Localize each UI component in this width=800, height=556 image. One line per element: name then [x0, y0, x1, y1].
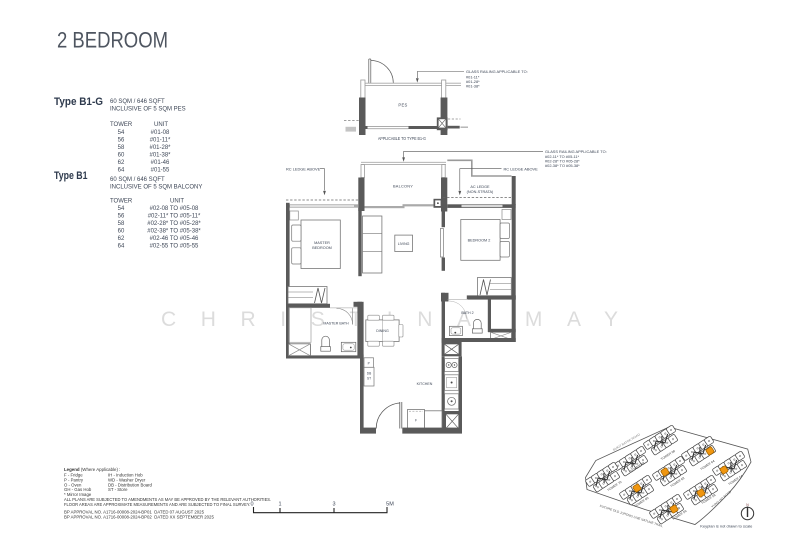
svg-text:Type B1: Type B1	[54, 170, 88, 182]
svg-text:56: 56	[118, 138, 125, 144]
svg-text:UNIT: UNIT	[170, 199, 184, 205]
svg-text:64: 64	[118, 244, 125, 250]
svg-text:#01-11*: #01-11*	[150, 138, 171, 144]
svg-text:5M: 5M	[386, 502, 394, 508]
svg-text:54: 54	[118, 206, 125, 212]
svg-text:#01-38*: #01-38*	[149, 153, 171, 159]
svg-text:MASTER: MASTER	[314, 241, 330, 245]
svg-text:Legend (Where Applicable) :: Legend (Where Applicable) :	[64, 467, 120, 472]
svg-text:BEDROOM: BEDROOM	[312, 246, 332, 250]
svg-text:64: 64	[118, 168, 125, 174]
svg-text:LIVING: LIVING	[398, 242, 410, 246]
svg-text:Keyplan is not drawn to scale: Keyplan is not drawn to scale	[700, 524, 753, 529]
svg-text:(NON-STRATA): (NON-STRATA)	[467, 190, 494, 194]
svg-text:P: P	[368, 361, 370, 365]
svg-text:58: 58	[118, 221, 125, 227]
svg-text:#01-46: #01-46	[151, 160, 170, 166]
svg-text:RC LEDGE ABOVE: RC LEDGE ABOVE	[504, 166, 539, 171]
svg-text:#01-28*: #01-28*	[149, 145, 171, 151]
svg-text:BATH 2: BATH 2	[461, 311, 473, 315]
svg-text:#02-08 TO #05-08: #02-08 TO #05-08	[150, 206, 199, 212]
svg-text:60: 60	[118, 229, 125, 235]
svg-text:DB: DB	[367, 372, 371, 376]
svg-text:#01-08: #01-08	[151, 130, 170, 136]
svg-text:TOWER: TOWER	[110, 199, 133, 205]
svg-text:#02-46 TO #05-46: #02-46 TO #05-46	[150, 236, 199, 242]
svg-text:INCLUSIVE OF 5 SQM PES: INCLUSIVE OF 5 SQM PES	[110, 107, 186, 113]
svg-text:54: 54	[118, 130, 125, 136]
svg-text:MASTER BATH: MASTER BATH	[323, 321, 349, 325]
svg-text:#02-38* TO #05-38*: #02-38* TO #05-38*	[147, 229, 201, 235]
svg-text:60 SQM / 646 SQFT: 60 SQM / 646 SQFT	[110, 177, 165, 183]
svg-text:BEDROOM 2: BEDROOM 2	[468, 239, 491, 243]
svg-text:UNIT: UNIT	[154, 122, 168, 128]
svg-text:#02-55 TO #05-55: #02-55 TO #05-55	[150, 244, 199, 250]
svg-text:APPLICABLE TO TYPE B1-G: APPLICABLE TO TYPE B1-G	[378, 136, 426, 141]
svg-text:Type B1-G: Type B1-G	[54, 96, 103, 108]
svg-text:2 BEDROOM: 2 BEDROOM	[57, 28, 168, 53]
svg-text:ST - Store: ST - Store	[108, 487, 128, 492]
svg-text:0: 0	[250, 502, 253, 508]
svg-text:INCLUSIVE OF 5 SQM BALCONY: INCLUSIVE OF 5 SQM BALCONY	[110, 185, 202, 191]
svg-text:BALCONY: BALCONY	[393, 183, 413, 188]
svg-text:#02-38* TO #05-38*: #02-38* TO #05-38*	[545, 163, 580, 168]
svg-text:PES: PES	[398, 103, 407, 108]
svg-text:1: 1	[278, 502, 281, 508]
svg-text:#01-55: #01-55	[151, 168, 170, 174]
svg-text:#01-38*: #01-38*	[466, 83, 480, 88]
svg-text:FLOOR AREAS ARE APPROXIMATE ME: FLOOR AREAS ARE APPROXIMATE MEASUREMENTS…	[64, 502, 250, 507]
svg-text:3: 3	[332, 502, 335, 508]
svg-text:#02-28* TO #05-28*: #02-28* TO #05-28*	[147, 221, 201, 227]
svg-text:ST: ST	[367, 377, 371, 381]
svg-text:62: 62	[118, 160, 125, 166]
svg-text:F: F	[415, 419, 417, 423]
svg-text:BP APPROVAL NO. A1716-00008-20: BP APPROVAL NO. A1716-00008-2024-BP02 DA…	[64, 515, 214, 520]
svg-text:56: 56	[118, 214, 125, 220]
svg-text:RC LEDGE ABOVE: RC LEDGE ABOVE	[286, 166, 321, 171]
svg-text:AC LEDGE: AC LEDGE	[470, 185, 490, 189]
svg-text:60: 60	[118, 153, 125, 159]
svg-text:#02-11* TO #05-11*: #02-11* TO #05-11*	[148, 214, 201, 220]
svg-text:DINING: DINING	[376, 329, 389, 333]
svg-text:60 SQM / 646 SQFT: 60 SQM / 646 SQFT	[110, 99, 165, 105]
svg-text:KITCHEN: KITCHEN	[417, 382, 433, 386]
svg-text:TOWER: TOWER	[110, 122, 133, 128]
svg-text:62: 62	[118, 236, 125, 242]
svg-text:58: 58	[118, 145, 125, 151]
